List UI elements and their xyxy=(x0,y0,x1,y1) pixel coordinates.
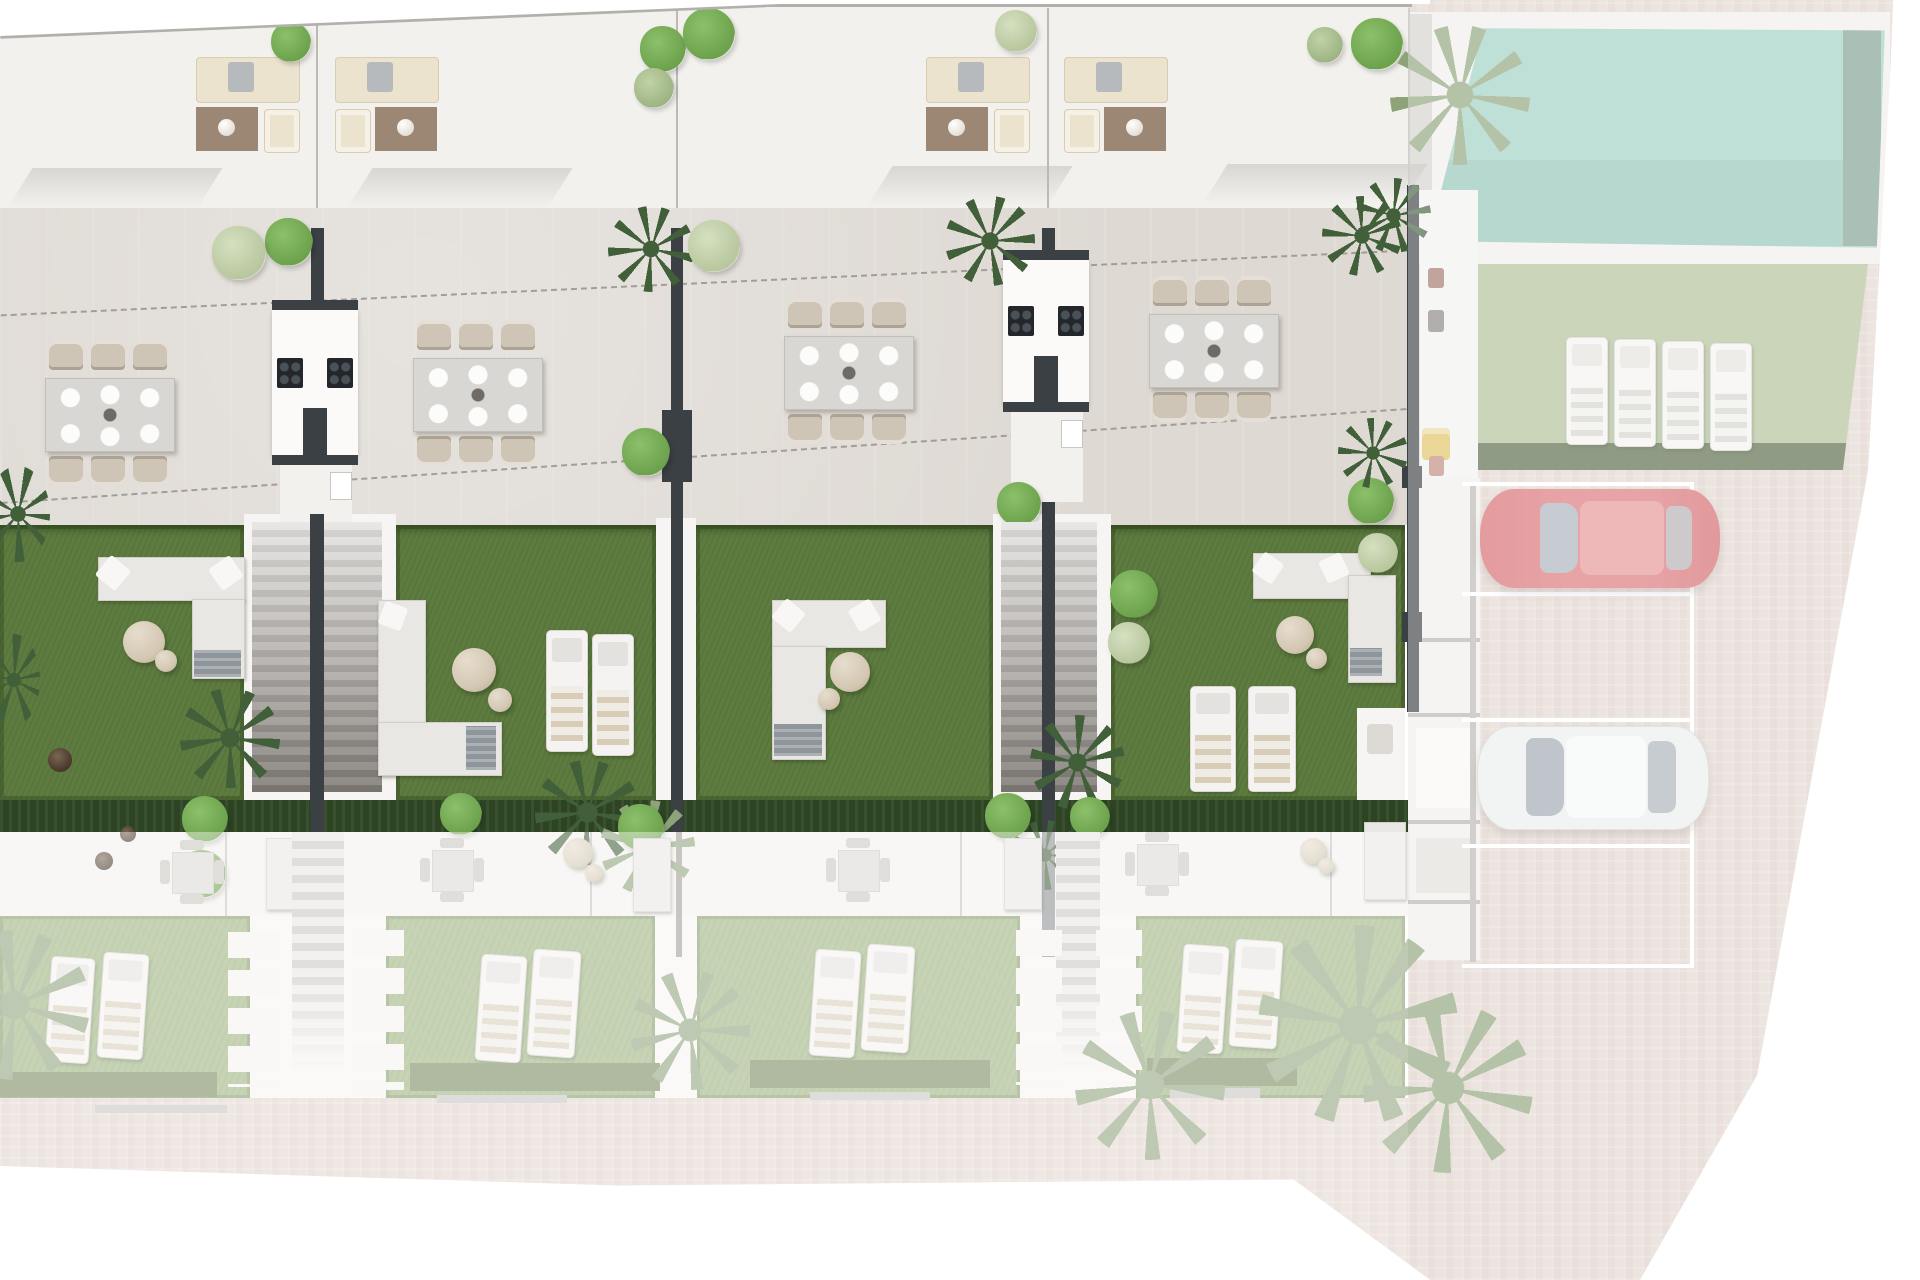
site-plan xyxy=(0,0,1920,1280)
bush-icon xyxy=(1358,533,1398,573)
sunbathing-lawn xyxy=(1450,264,1868,470)
pool-edge-hedge xyxy=(1843,30,1881,245)
tree-icon xyxy=(683,8,735,60)
bush-icon xyxy=(182,796,228,842)
interior-dining-unit-3 xyxy=(826,838,890,902)
interior-partition xyxy=(960,832,962,916)
pouf xyxy=(452,648,496,692)
dining-table xyxy=(413,358,543,432)
garden-lounger xyxy=(546,630,588,752)
sink-icon xyxy=(1061,420,1083,448)
lower-staircase-1 xyxy=(292,832,344,1082)
interior-partition xyxy=(225,832,227,916)
palm-tree-icon xyxy=(1075,1010,1225,1160)
cooktop-icon xyxy=(1008,306,1034,336)
bush-icon xyxy=(1070,797,1110,837)
tree-icon xyxy=(1307,27,1343,63)
terrace-shadow-1 xyxy=(8,168,223,208)
pouf xyxy=(830,652,870,692)
white-car-rear-window xyxy=(1648,741,1676,813)
interior-sofa xyxy=(1004,838,1042,910)
pouf xyxy=(1318,858,1334,874)
red-car-roof xyxy=(1580,501,1664,575)
dining-set-unit-4 xyxy=(1147,276,1279,426)
dining-set-unit-3 xyxy=(782,298,914,448)
cooktop-icon xyxy=(1058,306,1084,336)
palm-tree-icon xyxy=(1390,25,1530,165)
pouf xyxy=(1276,616,1314,654)
walkway-chair-red xyxy=(1429,456,1444,476)
pouf xyxy=(818,688,840,710)
roof-lounge-set-unit-4 xyxy=(1064,57,1166,153)
pouf xyxy=(585,864,603,882)
roof-divider-3 xyxy=(1047,8,1049,208)
entrance-threshold xyxy=(437,1095,567,1103)
interior-dining-unit-2 xyxy=(420,838,484,902)
bush-icon xyxy=(440,793,482,835)
palm-tree-icon xyxy=(1030,715,1125,810)
red-car-rear-window xyxy=(1666,506,1692,570)
tree-icon xyxy=(634,68,674,108)
pouf xyxy=(563,838,593,868)
dining-table xyxy=(45,378,175,452)
garden-lounger xyxy=(1248,686,1296,792)
interior-partition xyxy=(1330,832,1332,916)
party-wall-2 xyxy=(671,228,683,832)
walkway-chair-brown xyxy=(1428,268,1444,288)
interior-dining-unit-1 xyxy=(160,840,224,904)
red-car xyxy=(1480,489,1720,588)
garden-lounger xyxy=(1190,686,1236,792)
pouf xyxy=(1306,648,1327,669)
pouf xyxy=(488,688,512,712)
lower-hedge xyxy=(750,1060,990,1088)
dining-table xyxy=(784,336,914,410)
outdoor-kitchen-1 xyxy=(272,300,358,465)
interior-dining-unit-4 xyxy=(1125,832,1189,896)
garden-lounger xyxy=(592,634,634,756)
walkway-chair-dark xyxy=(1428,310,1444,332)
lawn-lounger-2 xyxy=(1614,339,1656,447)
lounge-mat xyxy=(1350,648,1382,676)
palm-tree-icon xyxy=(630,970,750,1090)
bush-icon xyxy=(622,428,670,476)
bush-icon xyxy=(985,793,1031,839)
garden-corner-patio xyxy=(1357,708,1405,800)
boundary-wall-4-door-a xyxy=(1402,466,1422,488)
tree-icon xyxy=(995,10,1037,52)
interior-sofa xyxy=(1364,822,1406,900)
tree-icon xyxy=(265,218,313,266)
lower-lounger xyxy=(860,943,915,1053)
bush-icon xyxy=(212,226,266,280)
entrance-threshold xyxy=(95,1105,227,1113)
cooktop-icon xyxy=(327,358,353,388)
dining-set-unit-1 xyxy=(43,340,175,490)
tree-icon xyxy=(1110,570,1158,618)
tree-icon xyxy=(1351,18,1403,70)
palm-tree-icon xyxy=(608,206,694,292)
lower-lounger xyxy=(526,948,581,1058)
boundary-wall-4-door-b xyxy=(1402,612,1422,642)
roof-lounge-set-unit-1 xyxy=(196,57,298,153)
terrace-shadow-2 xyxy=(348,168,573,208)
tree-icon xyxy=(271,22,311,62)
entrance-threshold xyxy=(810,1092,930,1100)
plant-pot-icon xyxy=(95,852,113,870)
lawn-lounger-3 xyxy=(1662,341,1704,449)
lounge-mat xyxy=(194,650,241,677)
planter-steps xyxy=(352,930,404,1090)
white-car-roof xyxy=(1566,736,1646,818)
planter-steps xyxy=(228,932,280,1087)
palm-tree-icon xyxy=(945,196,1035,286)
sink-icon xyxy=(330,472,352,500)
lower-hedge xyxy=(410,1063,660,1091)
palm-tree-icon xyxy=(1338,418,1408,488)
lounge-mat xyxy=(466,726,496,770)
white-car xyxy=(1477,726,1709,830)
sky-white-flat xyxy=(750,0,1430,4)
red-car-windshield xyxy=(1540,503,1578,573)
lawn-lounger-4 xyxy=(1710,343,1752,451)
palm-tree-icon xyxy=(180,688,280,788)
bush-icon xyxy=(1108,622,1150,664)
pool-deep-water xyxy=(1429,160,1880,245)
lower-lounger xyxy=(808,949,861,1059)
lounge-mat xyxy=(774,724,822,756)
lower-lounger xyxy=(474,954,527,1064)
dining-set-unit-2 xyxy=(411,320,543,470)
palm-tree-icon xyxy=(1356,178,1431,253)
bush-icon xyxy=(688,220,740,272)
white-car-windshield xyxy=(1526,738,1564,816)
pouf xyxy=(155,650,177,672)
lawn-lounger-1 xyxy=(1566,337,1608,445)
interior-sofa xyxy=(633,838,671,912)
palm-tree-icon xyxy=(1363,1003,1533,1173)
cooktop-icon xyxy=(277,358,303,388)
roof-lounge-set-unit-3 xyxy=(926,57,1028,153)
roofline-flat xyxy=(762,4,1412,7)
roof-lounge-set-unit-2 xyxy=(335,57,437,153)
planter-steps xyxy=(1016,930,1062,1085)
plant-pot-icon xyxy=(48,748,72,772)
tree-icon xyxy=(640,26,686,72)
dining-table xyxy=(1149,314,1279,388)
roof-divider-1 xyxy=(316,22,318,208)
lawn-hedge-bottom xyxy=(1450,443,1855,470)
plant-pot-icon xyxy=(120,826,136,842)
lower-lounger xyxy=(96,952,149,1061)
